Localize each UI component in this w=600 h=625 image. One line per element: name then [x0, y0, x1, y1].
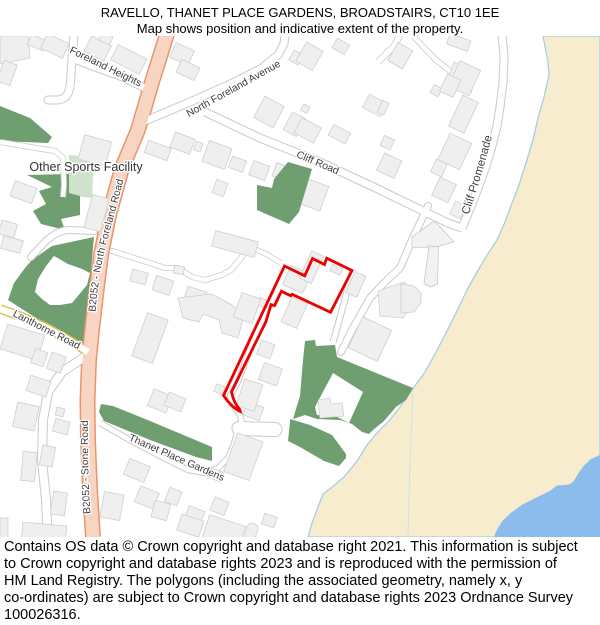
svg-text:Other Sports Facility: Other Sports Facility [29, 160, 143, 174]
